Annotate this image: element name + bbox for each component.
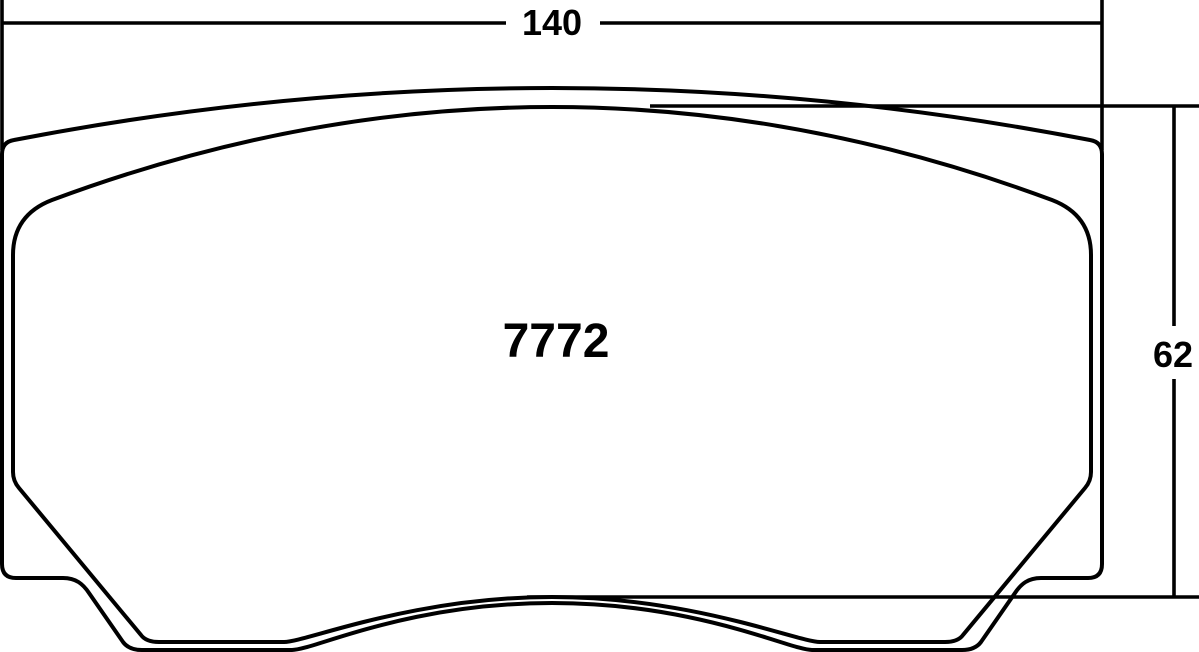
height-dimension-label: 62 [1153,334,1193,375]
technical-drawing: 140 62 7772 [0,0,1199,652]
part-number-label: 7772 [503,315,610,368]
friction-material-shape [13,107,1091,642]
width-dimension-label: 140 [522,2,582,43]
backing-plate-outline [2,88,1102,650]
brake-pad-drawing: 140 62 7772 [0,0,1199,652]
